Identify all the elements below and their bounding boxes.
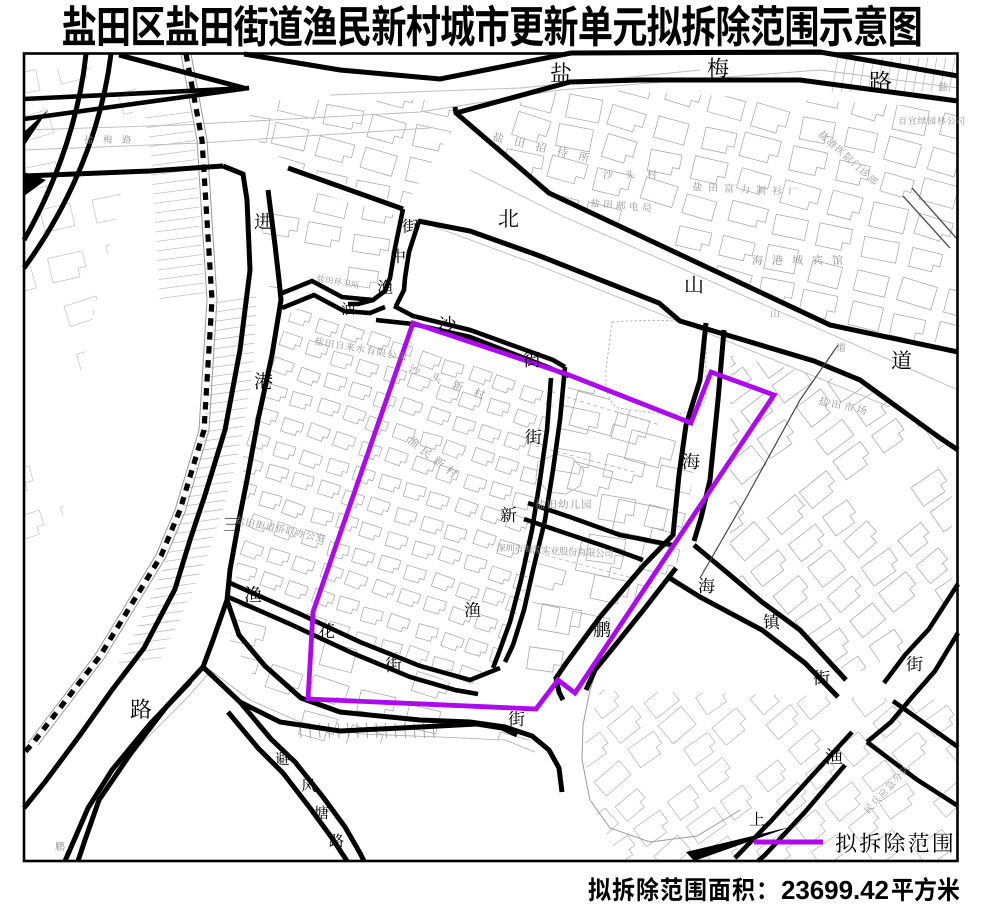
svg-text:23699.42: 23699.42 [781, 875, 889, 905]
